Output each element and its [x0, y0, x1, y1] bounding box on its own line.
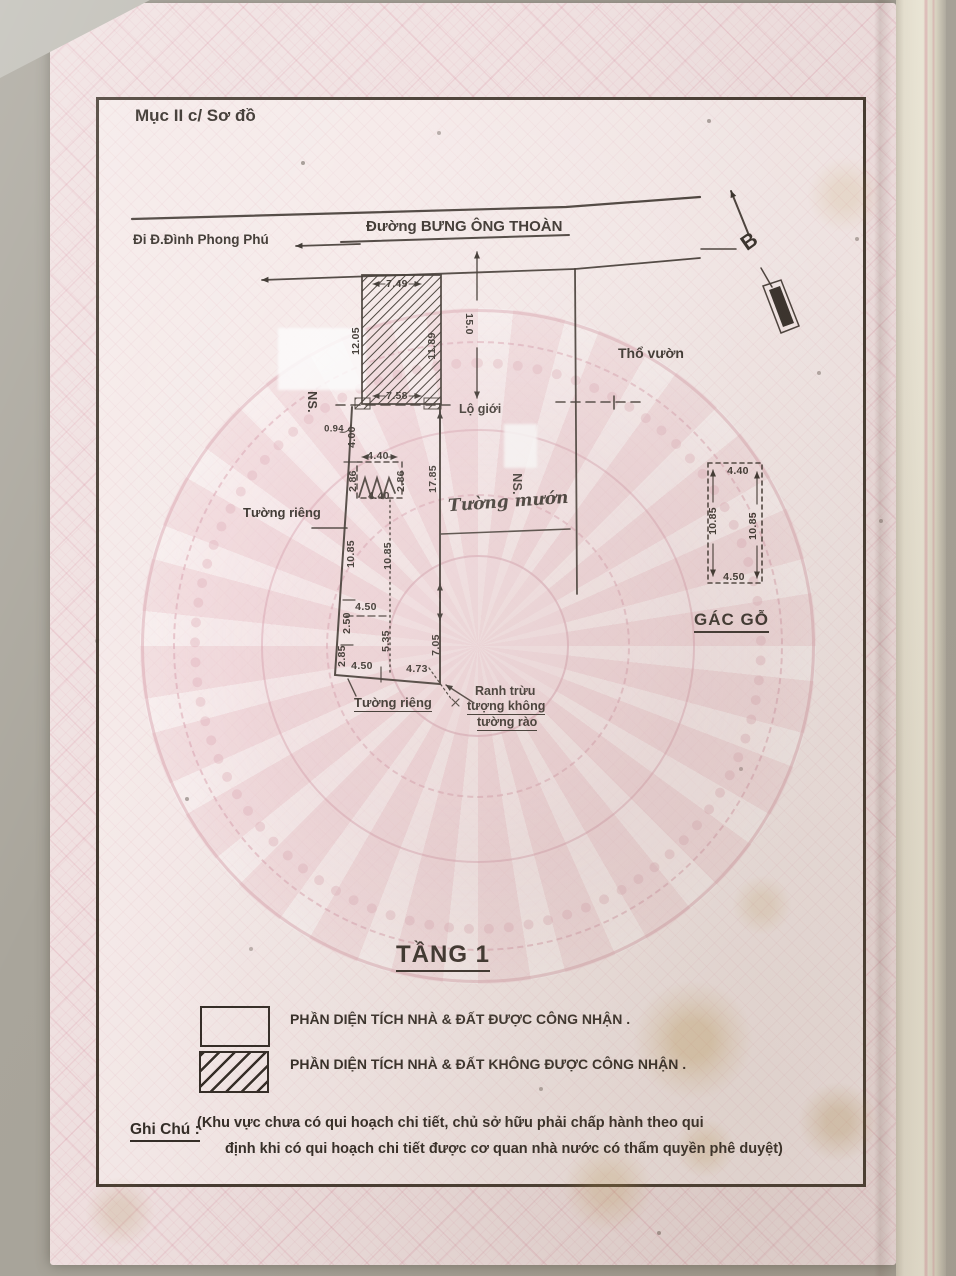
garden-label: Thổ vườn — [618, 345, 684, 361]
dim-bottom-left: 4.50 — [351, 660, 373, 672]
floor-title: TẦNG 1 — [396, 941, 490, 972]
note-line2: định khi có qui hoạch chi tiết được cơ q… — [225, 1141, 783, 1157]
legend-label-recognized: PHẦN DIỆN TÍCH NHÀ & ĐẤT ĐƯỢC CÔNG NHẬN … — [290, 1011, 630, 1027]
dim-hatched-left: 12.05 — [350, 327, 362, 355]
dim-stair-bottom: 4.40 — [368, 490, 390, 502]
dim-hatched-bottom: 7.58 — [386, 390, 408, 402]
road-boundary-label: Lộ giới — [459, 402, 501, 416]
dim-attic-right: 10.85 — [747, 512, 759, 540]
legend-swatch-not-recognized — [199, 1051, 269, 1093]
dim-stair-right: 2.86 — [395, 470, 407, 492]
dim-left-lower-a: 2.50 — [341, 612, 353, 634]
dim-upper-left: 4.00 — [346, 426, 358, 448]
boundary-note-line1: Ranh trừu — [475, 684, 535, 698]
dim-attic-top: 4.40 — [727, 465, 749, 477]
dim-mid-width: 4.50 — [355, 601, 377, 613]
dim-center-lower: 5.35 — [380, 630, 392, 652]
dim-stair-top: 4.40 — [367, 450, 389, 462]
neighbor-label-left: NS. — [305, 391, 319, 413]
private-wall-label-bottom: Tường riêng — [354, 695, 432, 712]
dim-left-mid: 10.85 — [345, 540, 357, 568]
legend-label-not-recognized: PHẦN DIỆN TÍCH NHÀ & ĐẤT KHÔNG ĐƯỢC CÔNG… — [290, 1056, 686, 1072]
wood-attic-label: GÁC GỖ — [694, 610, 769, 633]
site-plan-linework — [0, 0, 956, 1276]
north-arrow — [701, 191, 799, 333]
legend-swatch-recognized — [200, 1006, 270, 1047]
note-title: Ghi Chú : — [130, 1121, 200, 1142]
dim-attic-left: 10.85 — [707, 507, 719, 535]
boundary-note-line2: tượng không — [467, 699, 545, 715]
section-title: Mục II c/ Sơ đồ — [135, 106, 256, 126]
scanned-land-certificate: Mục II c/ Sơ đồ Đi Đ.Đình Phong Phú Đườn… — [0, 0, 956, 1276]
dim-stair-left: 2.86 — [347, 470, 359, 492]
dim-edge-offset: 0.94 — [324, 424, 344, 435]
dim-center-mid: 10.85 — [382, 542, 394, 570]
dim-hatched-right: 11.89 — [426, 332, 438, 359]
note-line1: (Khu vực chưa có qui hoạch chi tiết, chủ… — [197, 1115, 704, 1131]
dim-left-lower-b: 2.85 — [336, 645, 348, 667]
private-wall-label-top: Tường riêng — [243, 505, 321, 520]
street-direction-label: Đi Đ.Đình Phong Phú — [133, 232, 269, 247]
dim-bottom-right: 4.73 — [406, 663, 428, 675]
dim-road-setback: 15.0 — [463, 313, 475, 335]
dim-right-upper: 17.85 — [427, 465, 439, 493]
dim-hatched-top: 7.49 — [386, 278, 408, 290]
street-name-label: Đường BƯNG ÔNG THOÀN — [366, 218, 562, 235]
dim-right-lower: 7.05 — [430, 634, 442, 656]
dim-attic-bottom: 4.50 — [723, 571, 745, 583]
boundary-note-line3: tường rào — [477, 715, 537, 731]
